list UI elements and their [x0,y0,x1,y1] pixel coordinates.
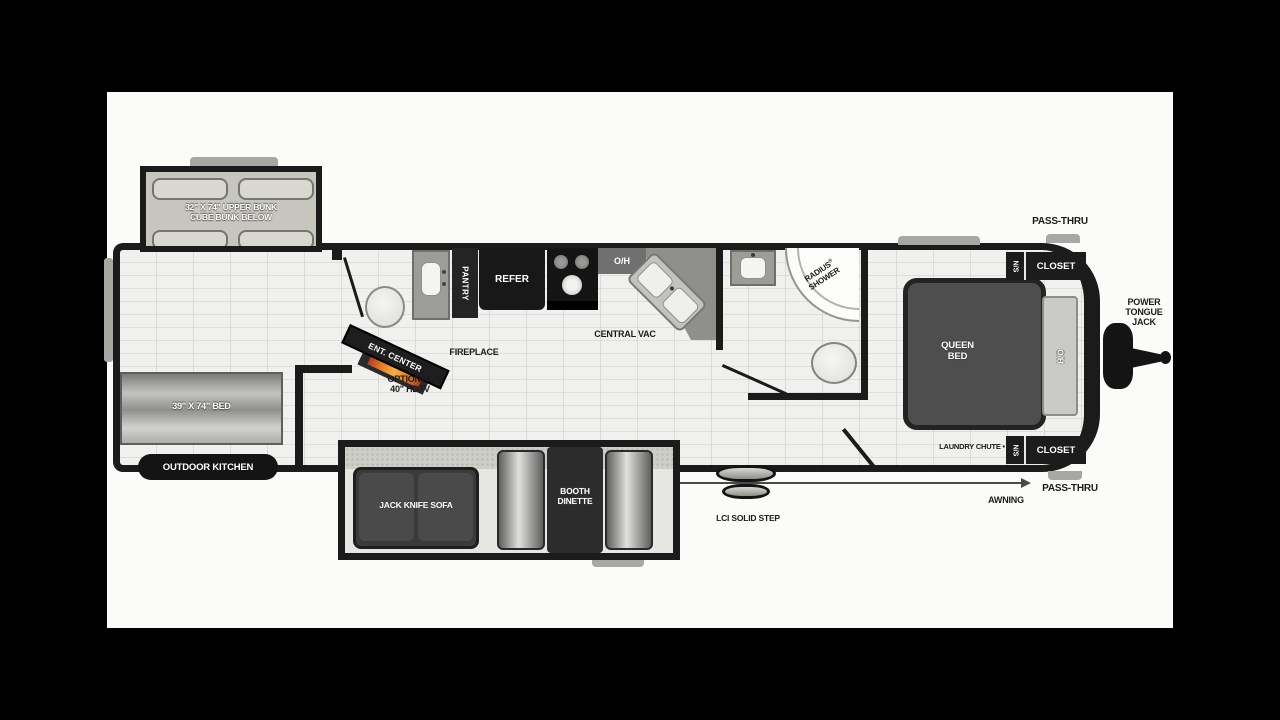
ns-top-label: N/S [1011,260,1018,272]
sofa-label: JACK KNIFE SOFA [356,501,476,511]
bunk-pillow [152,230,228,250]
central-vac-label: CENTRAL VAC [585,329,665,339]
rear-access-panel [104,258,113,362]
jack-line1: POWER [1115,297,1173,307]
bunk-label: 32" X 74" UPPER BUNK CUBE BUNK BELOW [146,203,316,222]
jack-line3: JACK [1115,317,1173,327]
fireplace-label: FIREPLACE [439,347,509,357]
refrigerator: REFER [479,248,545,310]
outdoor-kitchen-label: OUTDOOR KITCHEN [163,462,253,473]
lci-step-label: LCI SOLID STEP [703,514,793,524]
bunk-pillow [238,230,314,250]
queen-bed-line2: BED [908,352,1007,363]
rear-bed-label: 39" X 74" BED [122,401,281,411]
slide-foot [592,560,644,567]
closet-top: N/S CLOSET [1006,252,1086,280]
power-tongue-jack-label: POWER TONGUE JACK [1115,297,1173,327]
closet-top-label: CLOSET [1037,261,1076,272]
entry-step-2 [722,484,770,499]
bed-headboard: O/H [1042,296,1078,416]
bath-sink-bowl [740,257,766,279]
pass-thru-door-top [1046,234,1080,243]
burner [575,255,589,269]
pass-thru-door-bottom [1048,471,1082,480]
bunkroom-wall-stub [295,365,352,373]
dinette-table: BOOTH DINETTE [547,447,603,553]
awning-line [676,482,1023,484]
dinette-bench [497,450,545,550]
pass-thru-top-label: PASS-THRU [1015,216,1105,227]
laundry-chute-label: LAUNDRY CHUTE • [913,443,1005,451]
rear-bed: 39" X 74" BED [120,372,283,445]
burner-large [562,275,582,295]
dinette-line2: DINETTE [547,497,603,507]
refer-label: REFER [495,274,529,285]
bedroom-overhead-label: O/H [1055,349,1064,363]
tongue-jack-tip [1160,351,1171,364]
entry-step-1 [716,465,776,482]
ns-bottom: N/S [1006,436,1026,464]
closet-top-cell: CLOSET [1026,252,1086,280]
optional-tv-label: OPTIONAL 40" HDTV [370,374,450,394]
bath2-sink-bowl [421,262,441,296]
closet-bottom: N/S CLOSET [1006,436,1086,464]
bedroom-slide-marker [898,236,980,245]
bath2-door-frame [332,247,342,260]
queen-bed: QUEEN BED [903,278,1046,430]
kitchen-overhead-label: O/H [614,256,630,266]
burner [554,255,568,269]
faucet-dot [751,253,755,257]
jack-knife-sofa: JACK KNIFE SOFA [353,467,479,549]
pass-thru-bottom-label: PASS-THRU [1025,483,1115,494]
dinette-label: BOOTH DINETTE [547,487,603,506]
bath-toilet [811,342,857,384]
closet-bottom-label: CLOSET [1037,445,1076,456]
bath-wall-right [861,248,868,400]
bunk-slideout: 32" X 74" UPPER BUNK CUBE BUNK BELOW [140,166,322,252]
bath-wall-left [716,248,723,350]
outdoor-kitchen-badge: OUTDOOR KITCHEN [138,454,278,480]
page: { "floorplan": { "bunk_slide": { "line1"… [0,0,1280,720]
dinette-bench [605,450,653,550]
faucet-dot [442,270,446,274]
jack-line2: TONGUE [1115,307,1173,317]
sink-bowl [635,260,675,300]
queen-bed-label: QUEEN BED [908,341,1007,362]
bunk-pillow [238,178,314,200]
bunk-pillow [152,178,228,200]
tongue-jack-body [1103,323,1133,389]
sofa-dinette-slideout: JACK KNIFE SOFA BOOTH DINETTE [338,440,680,560]
stove-base [547,301,598,310]
pantry-label: PANTRY [461,266,470,300]
optional-tv-line2: 40" HDTV [370,384,450,394]
floorplan-canvas: 32" X 74" UPPER BUNK CUBE BUNK BELOW 39"… [107,92,1173,628]
optional-tv-line1: OPTIONAL [370,374,450,384]
ns-bottom-label: N/S [1011,444,1018,456]
awning-label: AWNING [978,495,1034,505]
ns-top: N/S [1006,252,1026,280]
pantry: PANTRY [452,248,478,318]
faucet-dot [442,282,446,286]
bunkroom-wall [295,365,303,467]
closet-bottom-cell: CLOSET [1026,436,1086,464]
bath-vanity [730,250,776,286]
bath2-vanity [412,250,450,320]
bunk-label-line2: CUBE BUNK BELOW [146,213,316,223]
bath2-toilet [365,286,405,328]
bath-wall-bottom [748,393,868,400]
stove [547,248,598,310]
